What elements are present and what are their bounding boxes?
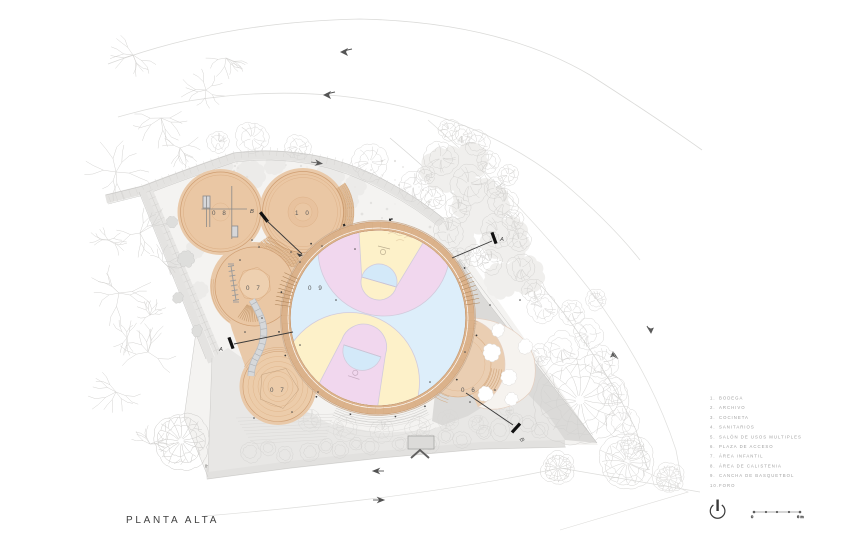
svg-text:COCINETA: COCINETA <box>719 415 749 420</box>
svg-text:4.: 4. <box>710 425 716 430</box>
svg-text:SALÓN DE USOS MULTIPLES: SALÓN DE USOS MULTIPLES <box>719 434 802 439</box>
svg-text:PLAZA DE ACCESO: PLAZA DE ACCESO <box>719 444 774 449</box>
svg-text:10.: 10. <box>710 483 719 488</box>
svg-text:ÁREA DE CALISTENIA: ÁREA DE CALISTENIA <box>719 463 782 468</box>
svg-text:8.: 8. <box>710 463 716 468</box>
svg-text:0 6: 0 6 <box>461 387 477 394</box>
svg-text:A: A <box>499 237 504 243</box>
svg-text:ARCHIVO: ARCHIVO <box>719 405 746 410</box>
svg-text:FORO: FORO <box>719 483 735 488</box>
svg-text:7.: 7. <box>710 454 716 459</box>
svg-text:0 8: 0 8 <box>212 210 228 217</box>
svg-text:9.: 9. <box>710 473 716 478</box>
svg-text:BODEGA: BODEGA <box>719 396 743 401</box>
svg-text:0 7: 0 7 <box>246 285 262 292</box>
svg-text:ÁREA INFANTIL: ÁREA INFANTIL <box>719 454 764 459</box>
svg-text:0 9: 0 9 <box>308 285 324 292</box>
svg-text:A: A <box>218 347 223 353</box>
svg-text:PLANTA ALTA: PLANTA ALTA <box>126 515 219 526</box>
svg-text:B: B <box>250 209 254 215</box>
svg-text:2.: 2. <box>710 405 716 410</box>
svg-text:1.: 1. <box>710 396 716 401</box>
svg-text:CANCHA DE BASQUETBOL: CANCHA DE BASQUETBOL <box>719 473 794 478</box>
svg-text:6 m: 6 m <box>797 514 804 519</box>
svg-text:5.: 5. <box>710 434 716 439</box>
svg-text:3.: 3. <box>710 415 716 420</box>
svg-text:6.: 6. <box>710 444 716 449</box>
svg-text:0 7: 0 7 <box>270 387 286 394</box>
svg-text:1 0: 1 0 <box>295 210 311 217</box>
svg-text:SANITARIOS: SANITARIOS <box>719 425 755 430</box>
